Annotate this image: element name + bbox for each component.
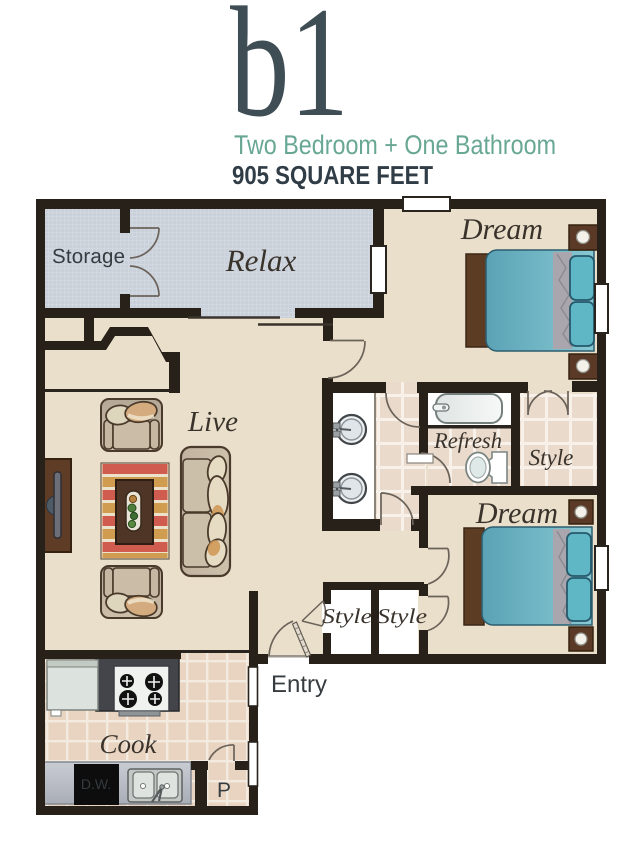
svg-text:Dream: Dream (475, 497, 558, 530)
svg-text:Live: Live (187, 406, 238, 438)
svg-text:905 SQUARE FEET: 905 SQUARE FEET (232, 160, 433, 190)
svg-text:Style: Style (322, 604, 372, 628)
svg-text:Refresh: Refresh (433, 428, 502, 453)
svg-text:Cook: Cook (100, 729, 158, 759)
svg-text:Style: Style (529, 445, 574, 470)
svg-text:Style: Style (377, 604, 427, 628)
svg-text:Two Bedroom + One Bathroom: Two Bedroom + One Bathroom (234, 130, 556, 160)
svg-text:Dream: Dream (460, 213, 543, 246)
svg-text:D.W.: D.W. (81, 776, 111, 792)
svg-text:Storage: Storage (52, 245, 125, 268)
svg-text:Entry: Entry (271, 671, 327, 698)
svg-text:P: P (217, 779, 231, 802)
svg-text:b1: b1 (230, 0, 349, 150)
svg-text:Relax: Relax (225, 243, 297, 278)
